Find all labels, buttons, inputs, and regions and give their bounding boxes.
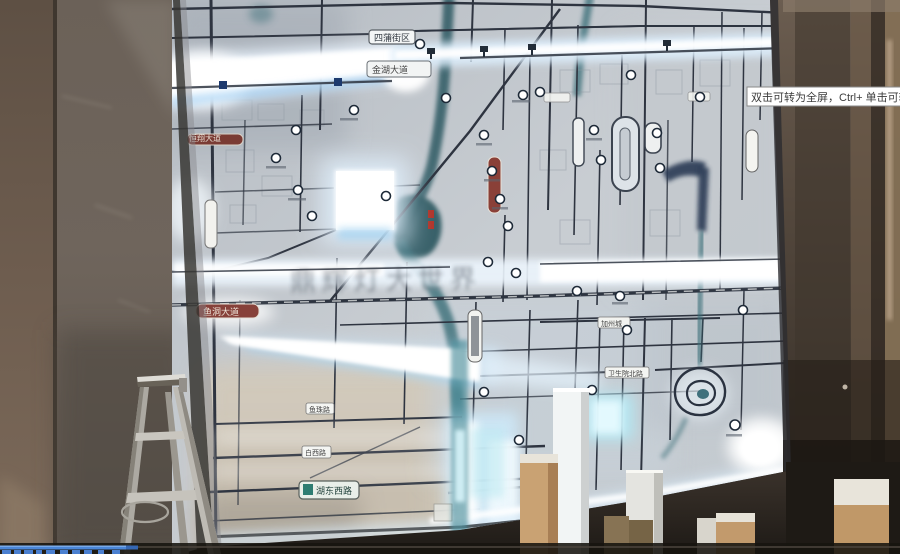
svg-text:金湖大道: 金湖大道 <box>372 64 408 75</box>
svg-text:双击可转为全屏，Ctrl+ 单击可转为: 双击可转为全屏，Ctrl+ 单击可转为 <box>751 90 900 104</box>
svg-text:加州城: 加州城 <box>601 319 622 328</box>
svg-text:四蒲街区: 四蒲街区 <box>374 32 410 43</box>
svg-text:白西路: 白西路 <box>305 448 326 457</box>
svg-text:鱼珠路: 鱼珠路 <box>309 405 330 414</box>
svg-text:卫生院北路: 卫生院北路 <box>608 369 643 378</box>
svg-text:鱼洞大道: 鱼洞大道 <box>203 306 239 317</box>
svg-text:湖东西路: 湖东西路 <box>316 485 352 496</box>
